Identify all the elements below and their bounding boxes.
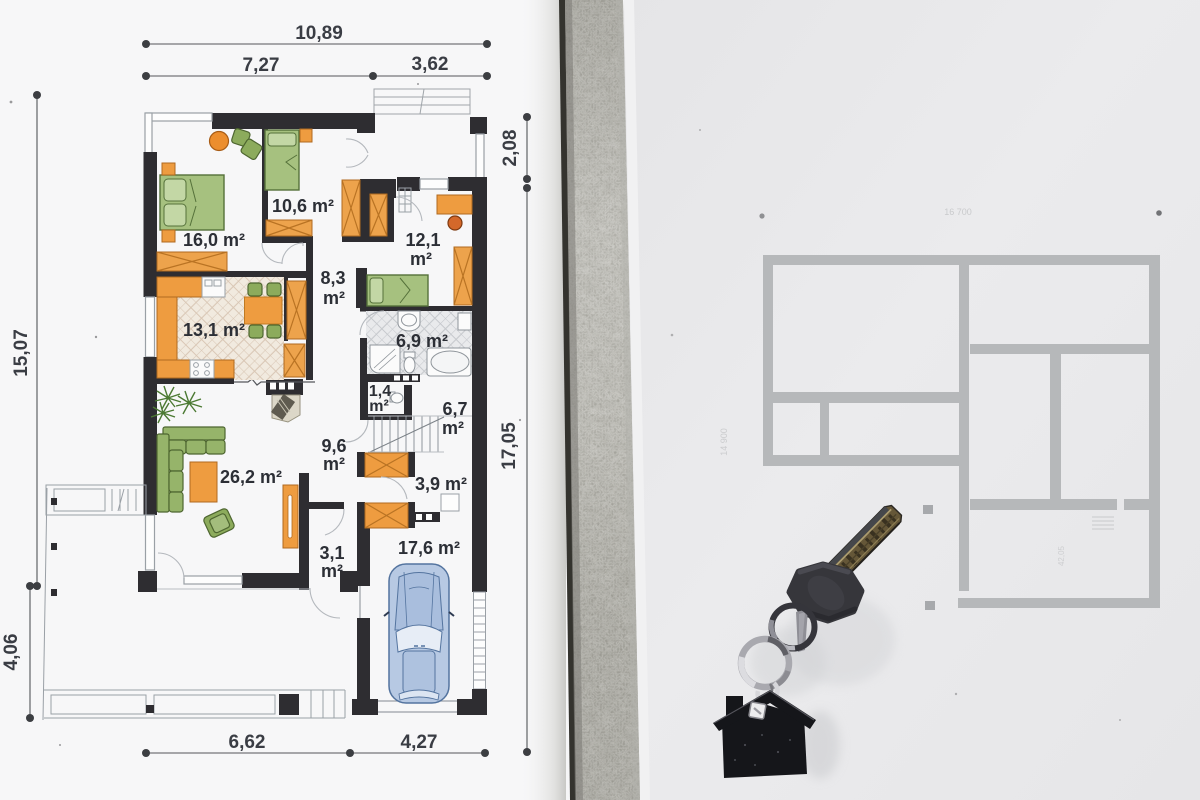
svg-text:16 700: 16 700 (944, 207, 972, 217)
svg-text:3,62: 3,62 (412, 54, 449, 75)
svg-text:7,27: 7,27 (243, 55, 280, 76)
svg-text:10,6 m²: 10,6 m² (272, 196, 334, 216)
svg-text:14 900: 14 900 (719, 428, 729, 456)
svg-text:12,1: 12,1 (405, 230, 440, 250)
svg-text:m²: m² (369, 398, 389, 415)
svg-text:2,08: 2,08 (500, 130, 521, 167)
svg-text:17,05: 17,05 (499, 422, 520, 470)
svg-text:42,05: 42,05 (1057, 545, 1066, 566)
svg-text:3,1: 3,1 (319, 543, 344, 563)
svg-text:m²: m² (323, 288, 345, 308)
svg-text:9,6: 9,6 (321, 436, 346, 456)
svg-text:m²: m² (323, 454, 345, 474)
svg-text:26,2 m²: 26,2 m² (220, 467, 282, 487)
svg-text:3,9 m²: 3,9 m² (415, 474, 467, 494)
svg-text:m²: m² (410, 249, 432, 269)
svg-text:4,27: 4,27 (401, 732, 438, 753)
svg-text:4,06: 4,06 (1, 634, 22, 671)
svg-text:13,1 m²: 13,1 m² (183, 320, 245, 340)
svg-text:16,0 m²: 16,0 m² (183, 230, 245, 250)
svg-text:10,89: 10,89 (295, 23, 343, 44)
svg-text:m²: m² (321, 561, 343, 581)
svg-text:17,6 m²: 17,6 m² (398, 538, 460, 558)
svg-text:8,3: 8,3 (320, 268, 345, 288)
svg-text:6,62: 6,62 (229, 732, 266, 753)
svg-text:6,9 m²: 6,9 m² (396, 331, 448, 351)
svg-text:m²: m² (442, 418, 464, 438)
svg-text:6,7: 6,7 (442, 399, 467, 419)
svg-text:15,07: 15,07 (11, 329, 32, 377)
